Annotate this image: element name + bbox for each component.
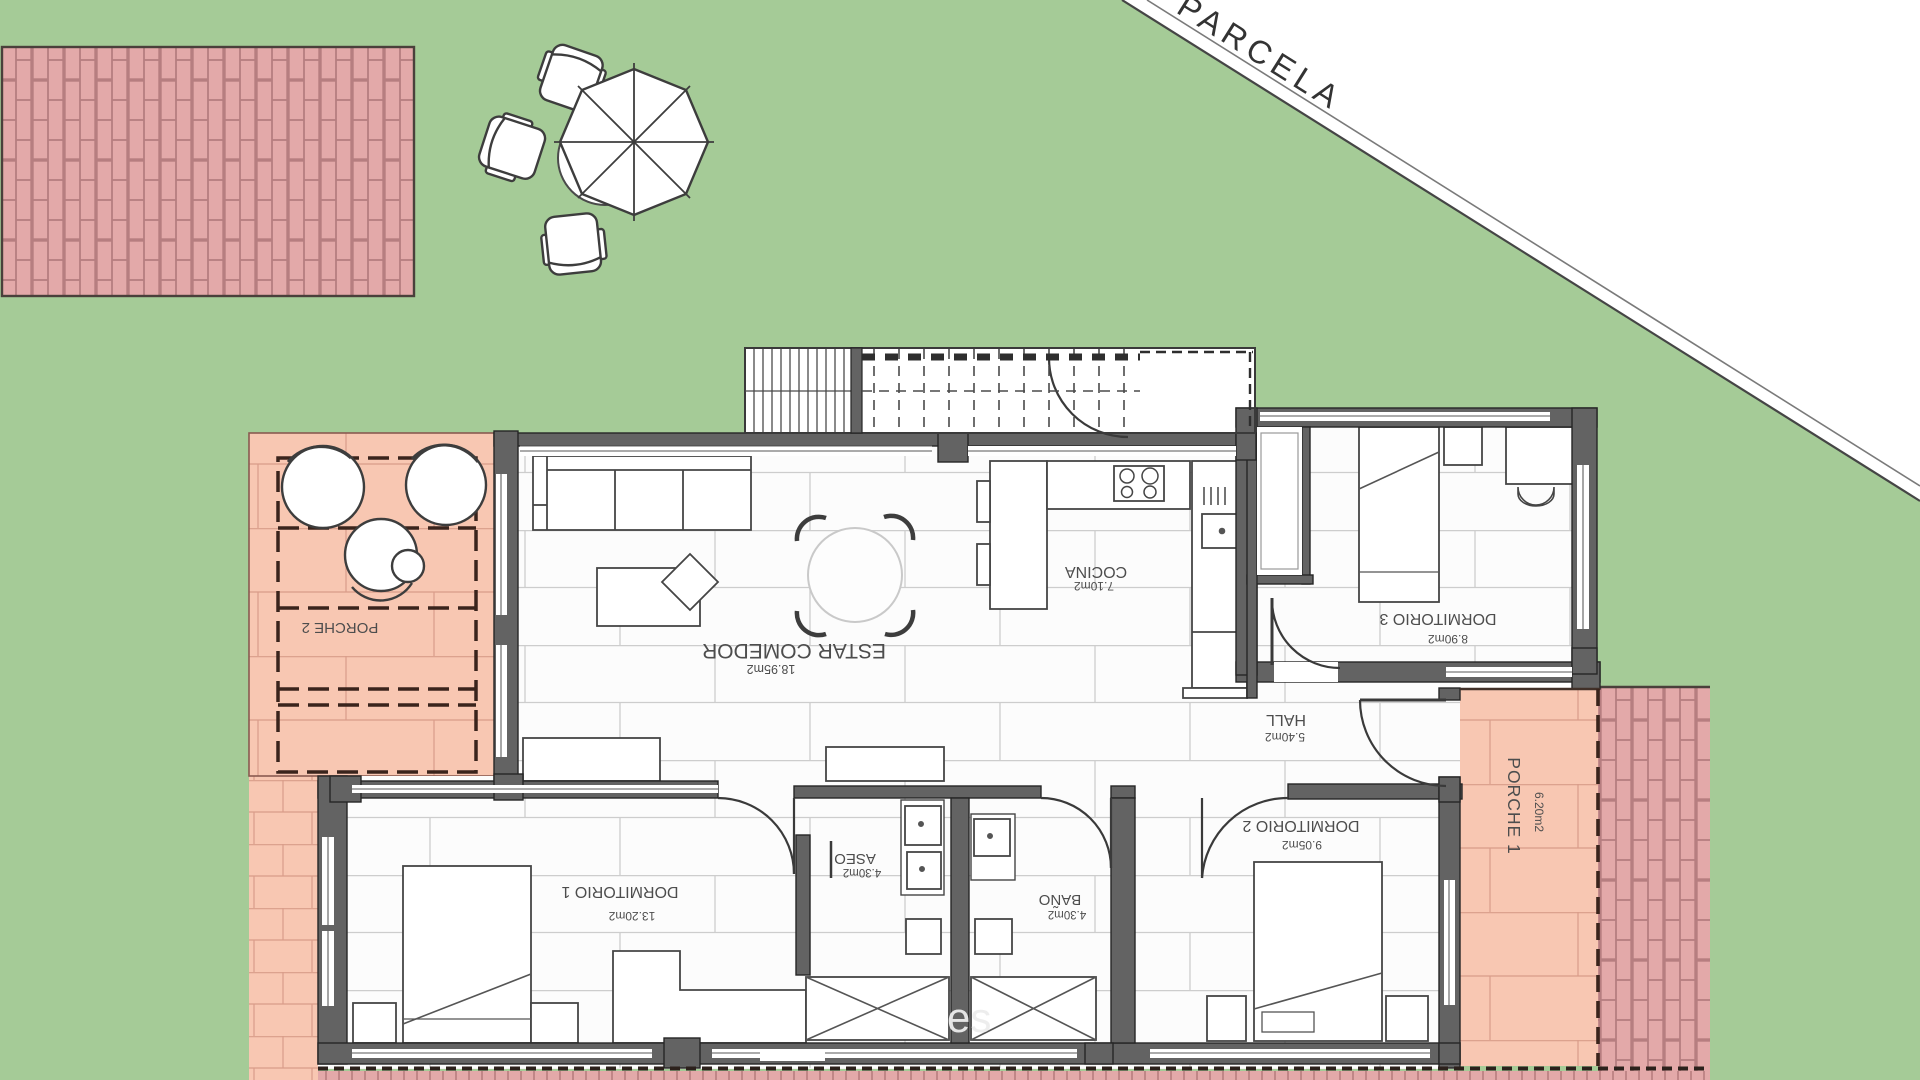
svg-text:8.90m2: 8.90m2	[1428, 632, 1468, 646]
svg-text:PORCHE 1: PORCHE 1	[1504, 757, 1524, 854]
svg-text:5.40m2: 5.40m2	[1265, 730, 1305, 744]
svg-text:DORMITORIO 3: DORMITORIO 3	[1379, 610, 1496, 627]
svg-text:18.95m2: 18.95m2	[747, 662, 796, 676]
svg-text:13.20m2: 13.20m2	[608, 909, 655, 923]
svg-text:es: es	[947, 994, 991, 1041]
svg-text:DORMITORIO 1: DORMITORIO 1	[561, 883, 678, 900]
svg-text:BAÑO: BAÑO	[1039, 891, 1082, 908]
svg-text:4.30m2: 4.30m2	[1048, 908, 1086, 920]
svg-text:DORMITORIO 2: DORMITORIO 2	[1242, 817, 1359, 834]
svg-text:HALL: HALL	[1266, 711, 1306, 728]
svg-text:ASEO: ASEO	[834, 850, 876, 867]
svg-text:9.05m2: 9.05m2	[1282, 838, 1322, 852]
svg-text:4.30m2: 4.30m2	[843, 866, 881, 878]
svg-text:PORCHE 2: PORCHE 2	[302, 619, 379, 636]
svg-text:6.20m2: 6.20m2	[1532, 792, 1546, 832]
svg-text:7.10m2: 7.10m2	[1074, 579, 1114, 593]
svg-text:ESTAR COMEDOR: ESTAR COMEDOR	[702, 639, 886, 662]
svg-text:COCINA: COCINA	[1065, 563, 1128, 580]
